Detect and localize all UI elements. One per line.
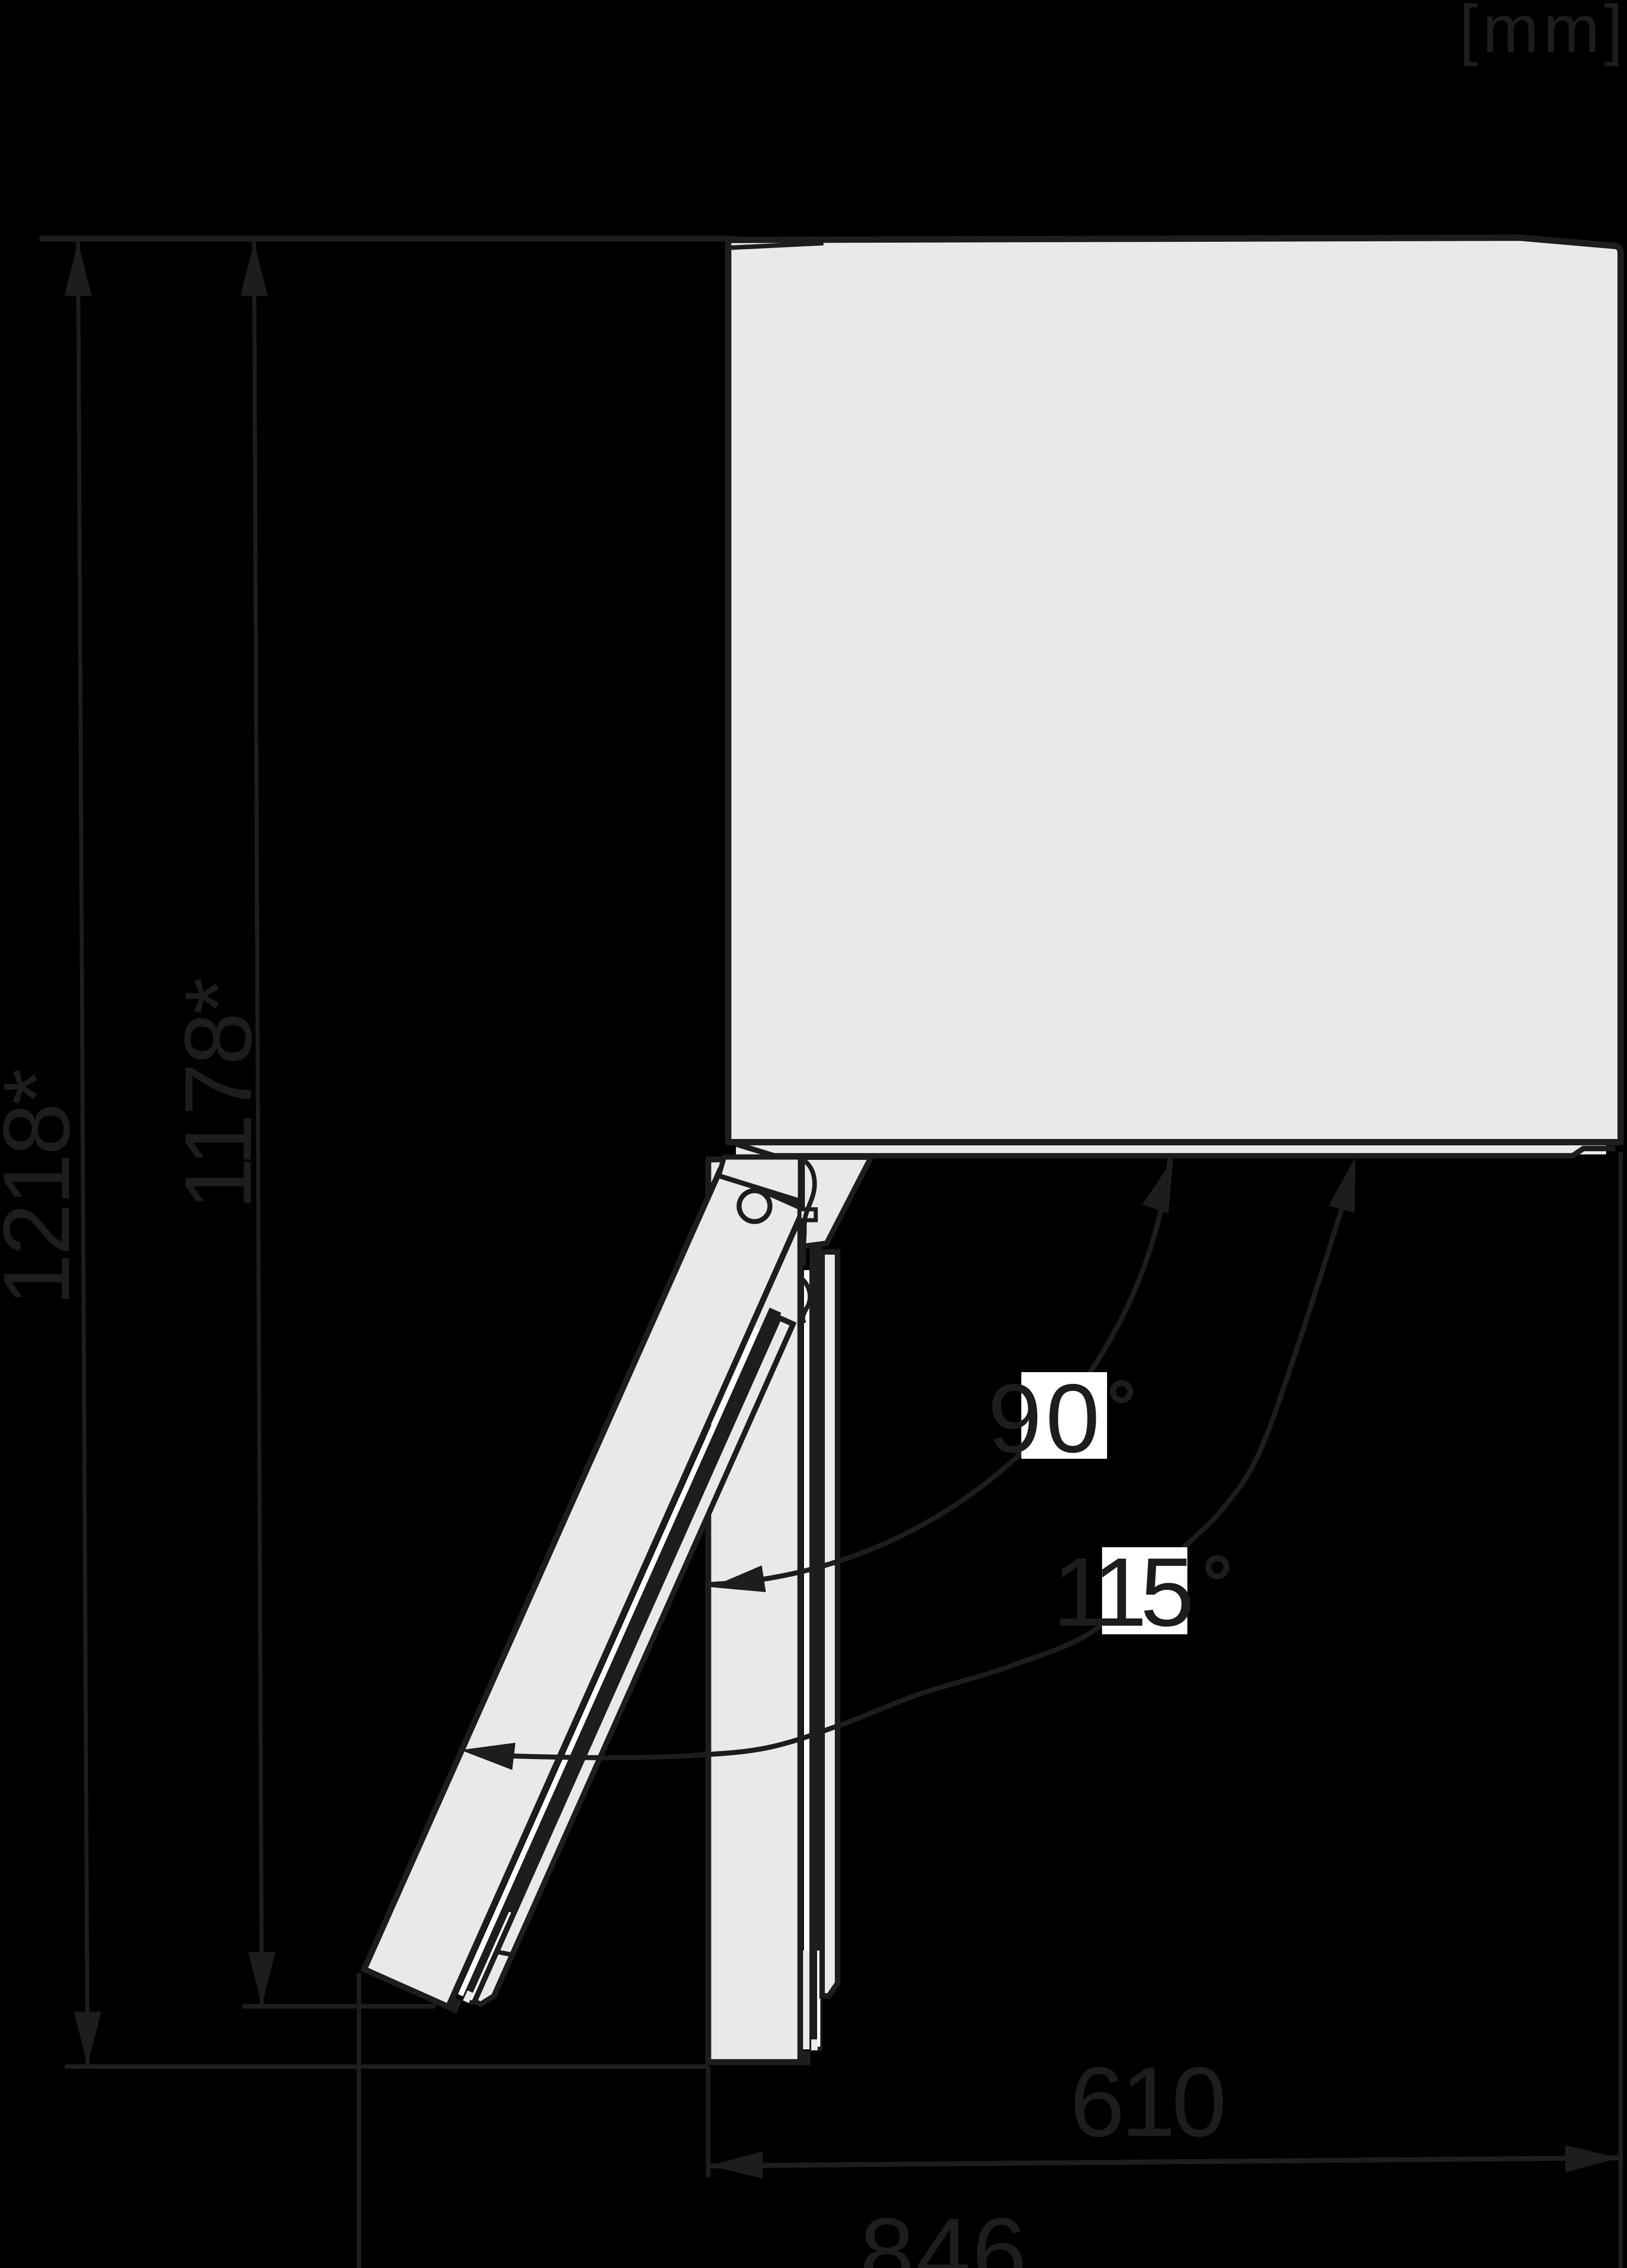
svg-text:115: 115 [1053,1537,1191,1647]
svg-text:90: 90 [988,1364,1103,1473]
svg-text:846: 846 [860,2198,1028,2268]
svg-text:610: 610 [1070,2047,1223,2157]
svg-text:1218*: 1218* [0,1070,89,1306]
svg-text:1178*: 1178* [165,979,271,1211]
svg-text:[mm]: [mm] [1459,0,1627,67]
